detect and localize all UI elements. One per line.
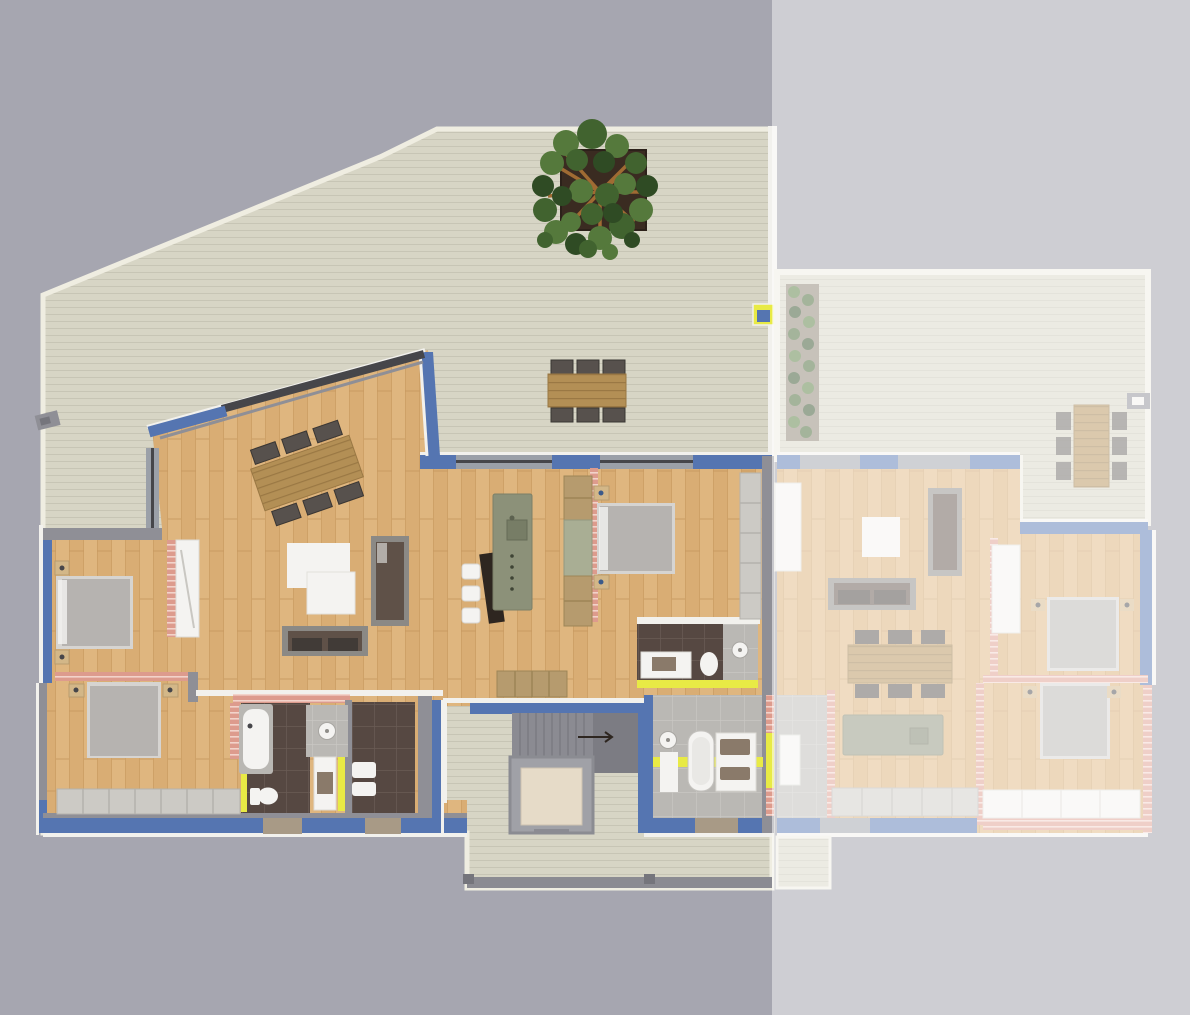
sideboard-cabinets	[497, 671, 567, 697]
double-vanity	[716, 733, 756, 791]
wall-bottom-blue	[43, 818, 467, 833]
wall-top-blue-3	[693, 455, 772, 469]
bar-stools	[462, 564, 480, 623]
door-yellow-ensuite	[637, 680, 758, 688]
pink-wall-wardrobe	[167, 540, 176, 637]
skylight-hatch	[753, 304, 774, 325]
floor-plan-stage	[0, 0, 1190, 1015]
skylight-glass	[757, 310, 770, 322]
wardrobe-row-bottom-left	[57, 789, 240, 814]
ensuite-toilet	[700, 652, 718, 676]
wall-left-lower	[39, 683, 47, 803]
wall-stairs-top	[470, 703, 647, 714]
main-bathroom-fixtures	[660, 731, 757, 792]
door-yellow-2	[338, 757, 345, 811]
window-top-2	[600, 455, 693, 469]
bathroom-dark-2-floor	[352, 702, 415, 817]
toilet-1	[250, 788, 278, 806]
coffee-table-2	[307, 572, 355, 614]
window-bay-2	[365, 818, 401, 834]
pink-wall-bedroom-divider	[55, 672, 188, 681]
sofa-vertical	[371, 536, 409, 626]
shower-bench	[660, 752, 678, 792]
wall-left-blue	[43, 540, 52, 683]
freestanding-tub	[688, 731, 714, 791]
pink-wall-bath1-left	[230, 703, 240, 759]
elevator-door	[534, 829, 569, 833]
deck-post-right	[644, 874, 655, 884]
wardrobe-middle-bedroom	[740, 473, 761, 619]
wall-bathblock-right	[418, 695, 432, 818]
kitchen-island	[493, 494, 532, 610]
pink-wall-shower-top	[306, 694, 350, 703]
elevator	[510, 757, 593, 833]
window-top-1	[456, 455, 552, 469]
sofa-horizontal	[282, 626, 368, 656]
window-living-left	[146, 448, 159, 530]
stair-landing	[593, 713, 638, 773]
window-bay-1	[263, 818, 302, 834]
outdoor-table	[548, 374, 626, 407]
wall-bedroom1-top	[43, 528, 162, 540]
outdoor-dining-set	[548, 360, 626, 422]
vanity-1	[314, 757, 336, 810]
pink-wall-bath1-top	[233, 694, 310, 703]
bed-left-top	[55, 561, 133, 664]
shower-1	[306, 705, 348, 757]
deck-edge-band	[467, 877, 772, 888]
island-sink	[507, 520, 527, 540]
wall-top-blue-1	[420, 455, 456, 469]
bathtub	[239, 704, 273, 774]
deck-post-left	[463, 874, 474, 884]
window-bay-3	[695, 818, 738, 834]
wall-top-blue-2	[552, 455, 600, 469]
wall-mainbath-left	[644, 695, 653, 820]
faded-overlay	[772, 0, 1190, 1015]
floor-plan-svg	[0, 0, 1190, 1015]
tall-cabinet	[564, 476, 592, 626]
